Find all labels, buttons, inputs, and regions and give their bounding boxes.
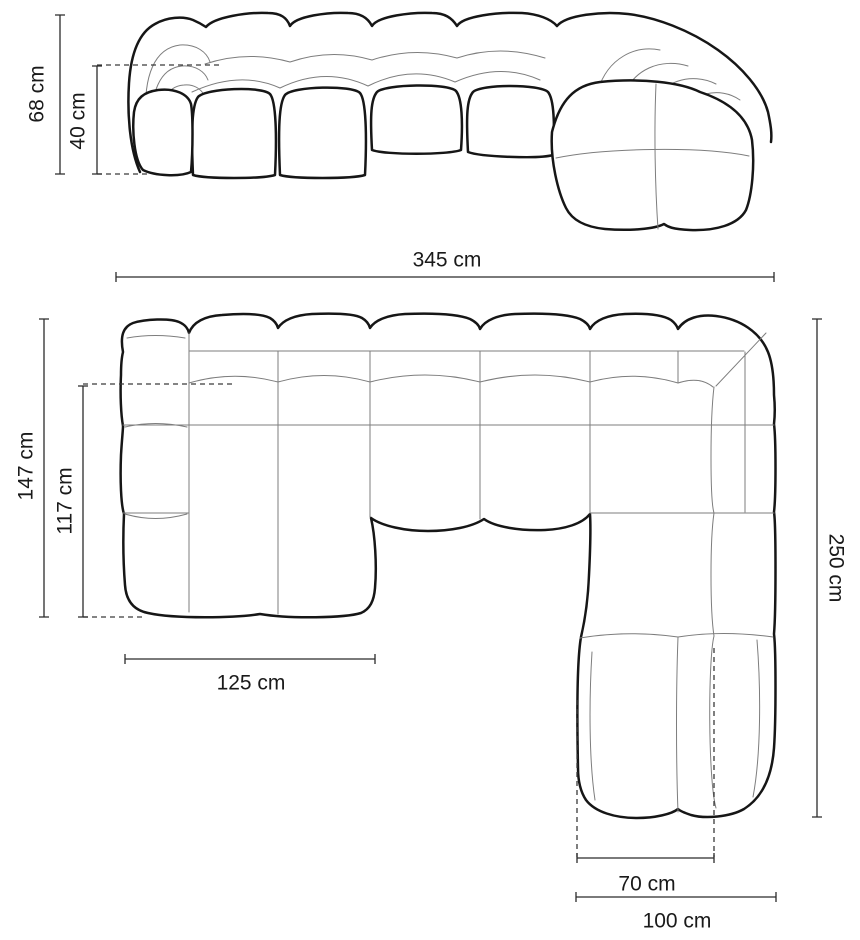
dim-label-seat-depth: 117 cm [54, 467, 77, 534]
dim-label-left-depth: 147 cm [15, 432, 38, 501]
dim-total-height: 68 cm [26, 15, 66, 174]
dim-label-chaise-total-width: 100 cm [643, 910, 712, 933]
dim-seat-height: 40 cm [67, 66, 103, 174]
dim-label-chaise-seat-width: 70 cm [618, 873, 675, 896]
dim-seat-depth: 117 cm [54, 386, 89, 617]
front-elevation-drawing [128, 13, 771, 230]
corner-block [552, 80, 753, 230]
dim-total-width: 345 cm [116, 249, 774, 283]
seat-cushion [467, 86, 554, 157]
seat-cushion [279, 88, 366, 178]
dim-label-seat-height: 40 cm [67, 92, 90, 149]
arm-front-cushion [133, 90, 192, 176]
dim-label-total-height: 68 cm [26, 65, 49, 122]
dim-left-section-width: 125 cm [125, 654, 375, 695]
dim-chaise-total-width: 100 cm [576, 892, 776, 933]
dim-label-left-section-width: 125 cm [217, 672, 286, 695]
diagram-canvas: 68 cm 40 cm 345 cm 147 cm 117 cm 125 cm [0, 0, 860, 940]
seat-cushion [192, 89, 276, 178]
sofa-dimension-diagram: 68 cm 40 cm 345 cm 147 cm 117 cm 125 cm [0, 0, 860, 940]
top-plan-drawing [121, 314, 776, 818]
backrest-seam [205, 51, 545, 64]
dim-left-depth: 147 cm [15, 319, 50, 617]
plan-outline [121, 314, 776, 818]
seat-cushion [371, 85, 462, 153]
dim-chaise-seat-width: 70 cm [577, 853, 714, 896]
dim-label-right-depth: 250 cm [825, 534, 848, 603]
dim-right-depth: 250 cm [812, 319, 848, 817]
dim-label-total-width: 345 cm [413, 249, 482, 272]
